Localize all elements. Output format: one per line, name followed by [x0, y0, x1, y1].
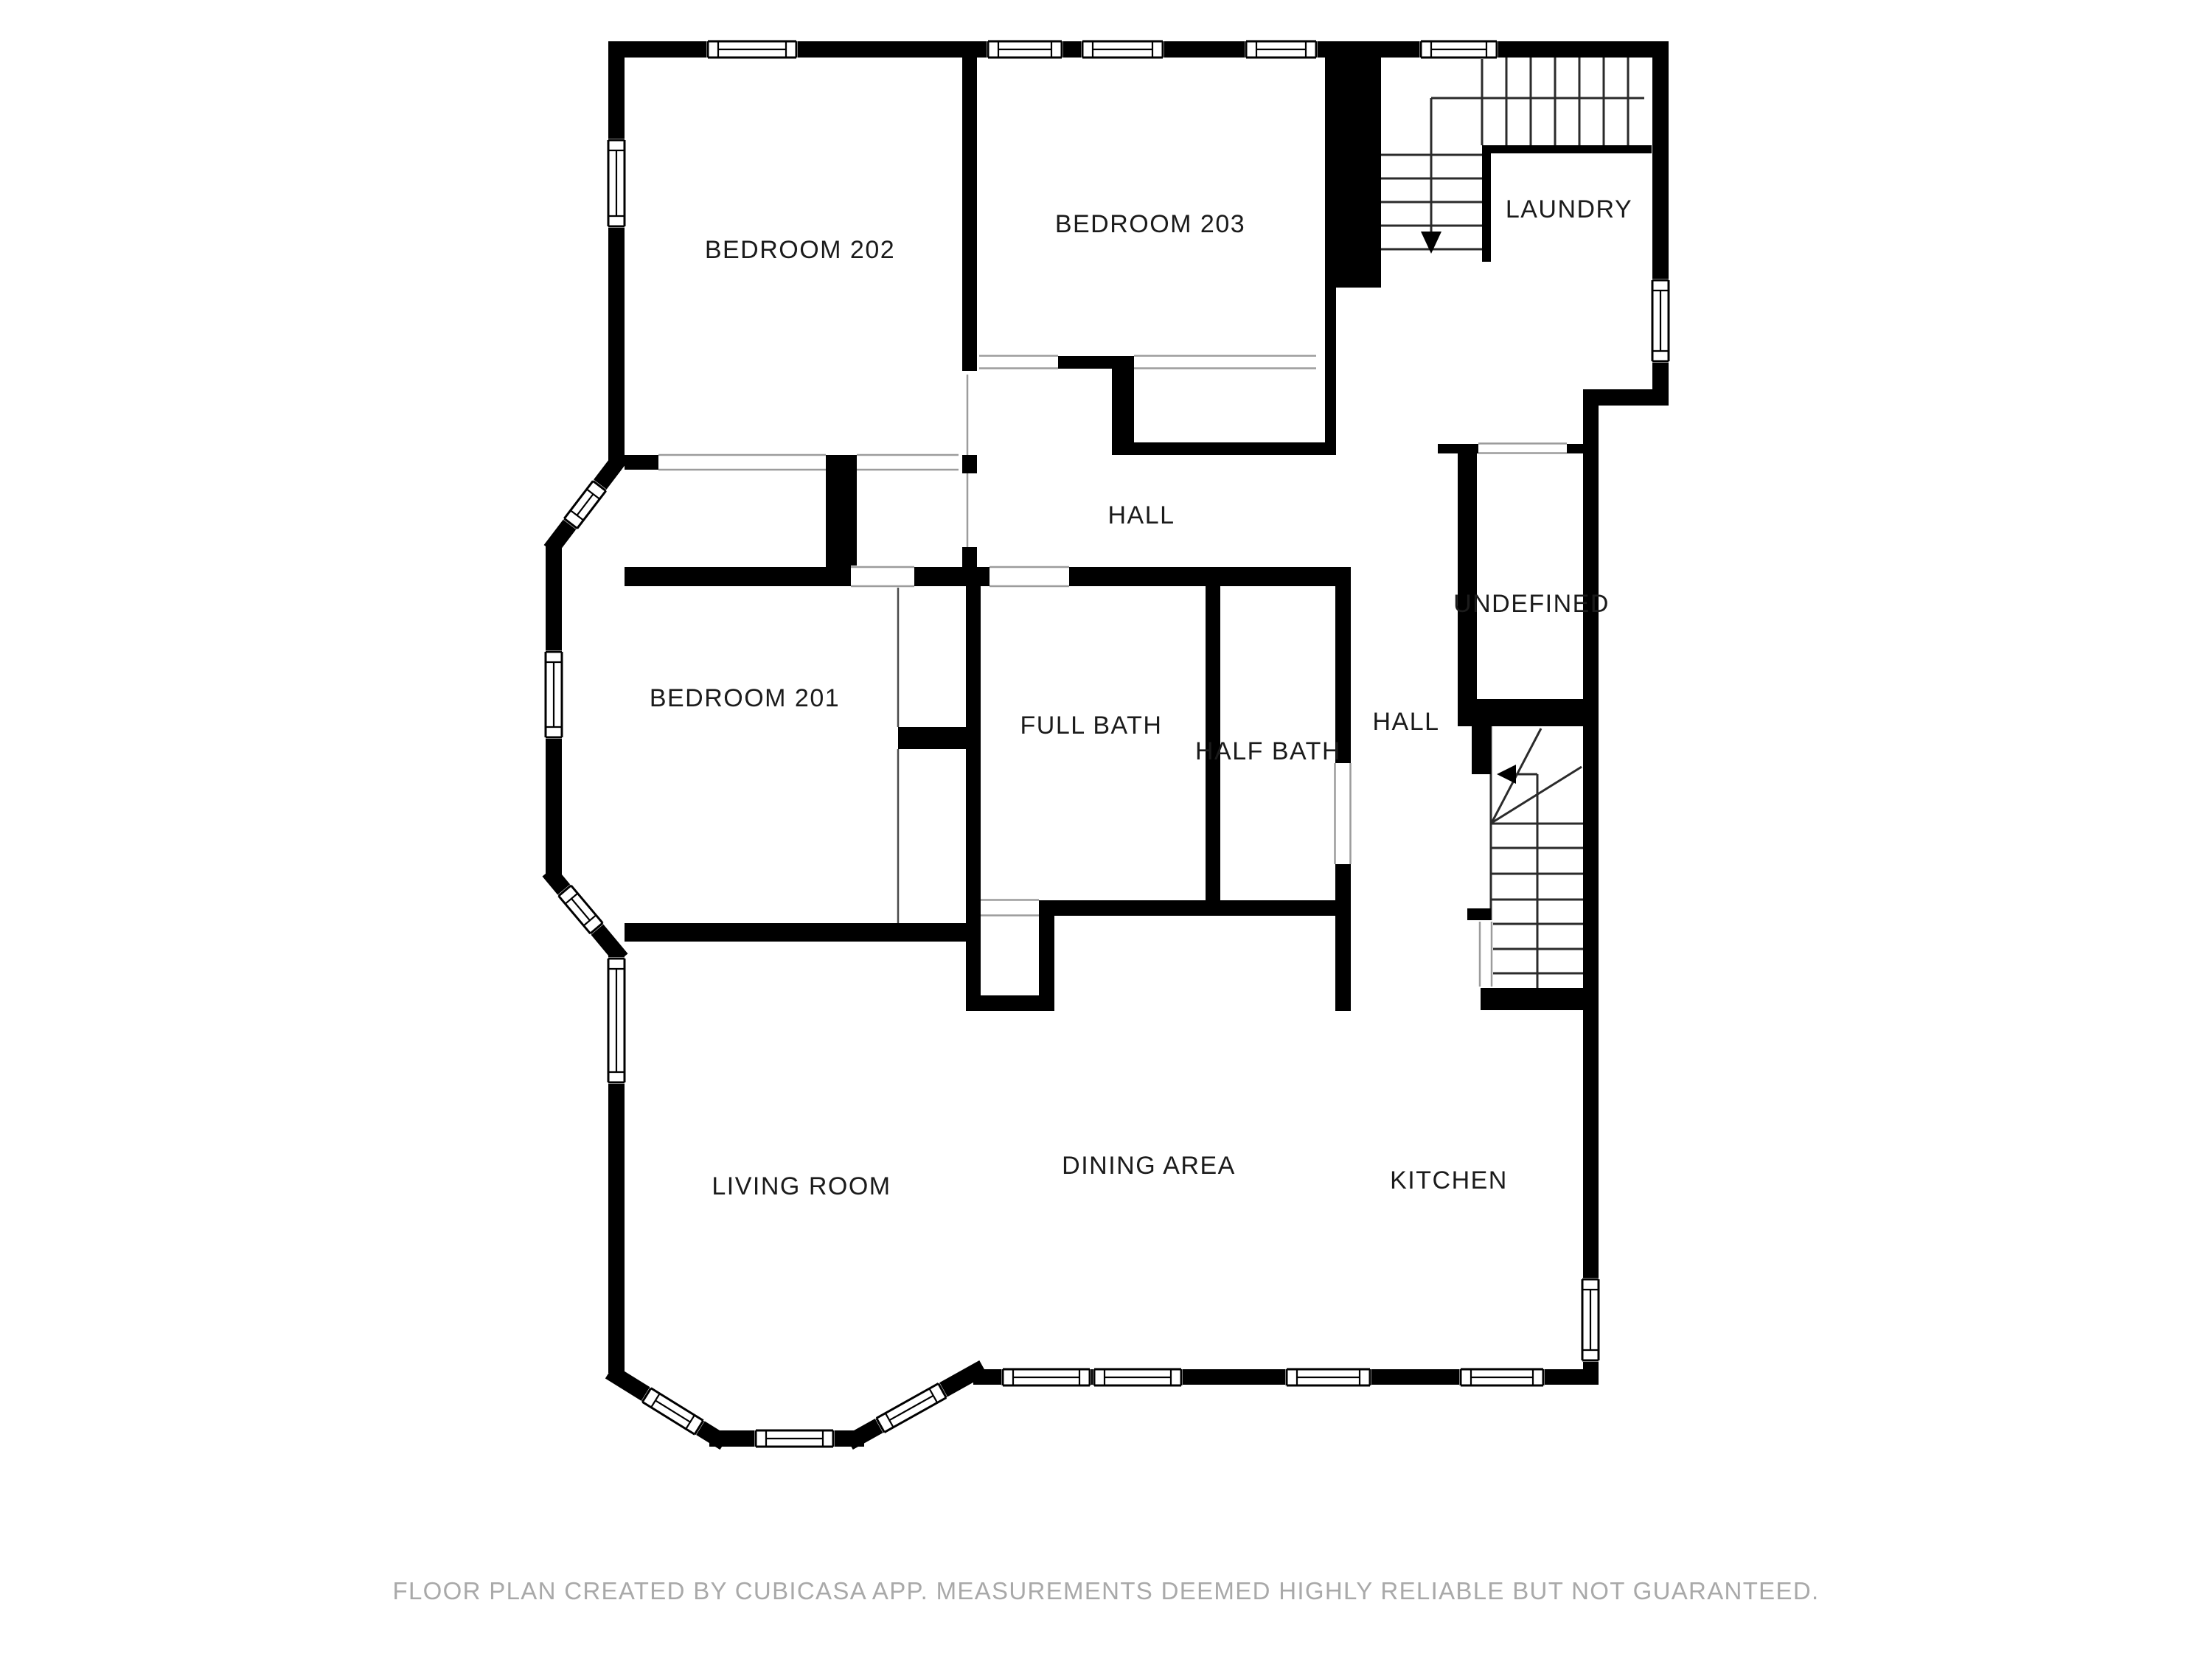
wall: [1481, 988, 1584, 1010]
room-label-bedroom-201: BEDROOM 201: [650, 684, 840, 712]
room-label-laundry: LAUNDRY: [1506, 195, 1632, 223]
room-label-kitchen: KITCHEN: [1390, 1166, 1508, 1194]
wall: [1335, 916, 1351, 1011]
wall: [1039, 900, 1335, 916]
room-label-full-bath: FULL BATH: [1020, 712, 1163, 740]
plan-background: [0, 0, 2212, 1659]
wall: [973, 900, 981, 916]
room-label-undefined: UNDEFINED: [1453, 590, 1610, 618]
wall: [826, 455, 857, 470]
wall: [1335, 567, 1351, 763]
room-label-hall-right: HALL: [1372, 708, 1439, 736]
wall: [625, 567, 851, 586]
wall: [962, 455, 977, 473]
wall: [1458, 699, 1599, 726]
wall: [898, 727, 966, 749]
room-label-dining-area: DINING AREA: [1062, 1152, 1236, 1180]
wall: [1472, 726, 1491, 774]
wall: [1482, 145, 1652, 153]
room-label-half-bath: HALF BATH: [1195, 737, 1341, 765]
wall: [1069, 567, 1351, 586]
wall: [1583, 406, 1599, 1385]
footer-disclaimer: FLOOR PLAN CREATED BY CUBICASA APP. MEAS…: [0, 1577, 2212, 1605]
wall: [826, 470, 857, 567]
wall: [1112, 442, 1325, 455]
wall: [1567, 444, 1583, 453]
floorplan-page: BEDROOM 202BEDROOM 203LAUNDRYHALLUNDEFIN…: [0, 0, 2212, 1659]
wall: [1335, 864, 1351, 916]
wall: [1039, 916, 1054, 995]
wall: [1058, 356, 1134, 369]
wall: [1467, 908, 1491, 920]
wall: [1438, 444, 1478, 453]
wall: [1325, 41, 1381, 288]
wall: [962, 547, 977, 567]
wall: [966, 942, 981, 995]
wall: [1482, 153, 1491, 262]
wall: [1325, 288, 1336, 455]
wall: [962, 58, 977, 371]
wall: [625, 923, 981, 942]
wall: [966, 995, 1054, 1011]
wall: [1583, 389, 1669, 406]
wall: [966, 567, 981, 923]
wall: [625, 455, 658, 470]
wall: [1458, 453, 1477, 699]
room-label-bedroom-202: BEDROOM 202: [705, 236, 895, 264]
room-label-living-room: LIVING ROOM: [712, 1172, 891, 1200]
floorplan-canvas: BEDROOM 202BEDROOM 203LAUNDRYHALLUNDEFIN…: [0, 0, 2212, 1659]
room-label-bedroom-203: BEDROOM 203: [1055, 210, 1245, 238]
room-label-hall-upper: HALL: [1107, 501, 1175, 529]
wall: [608, 58, 625, 461]
wall: [1112, 369, 1134, 442]
